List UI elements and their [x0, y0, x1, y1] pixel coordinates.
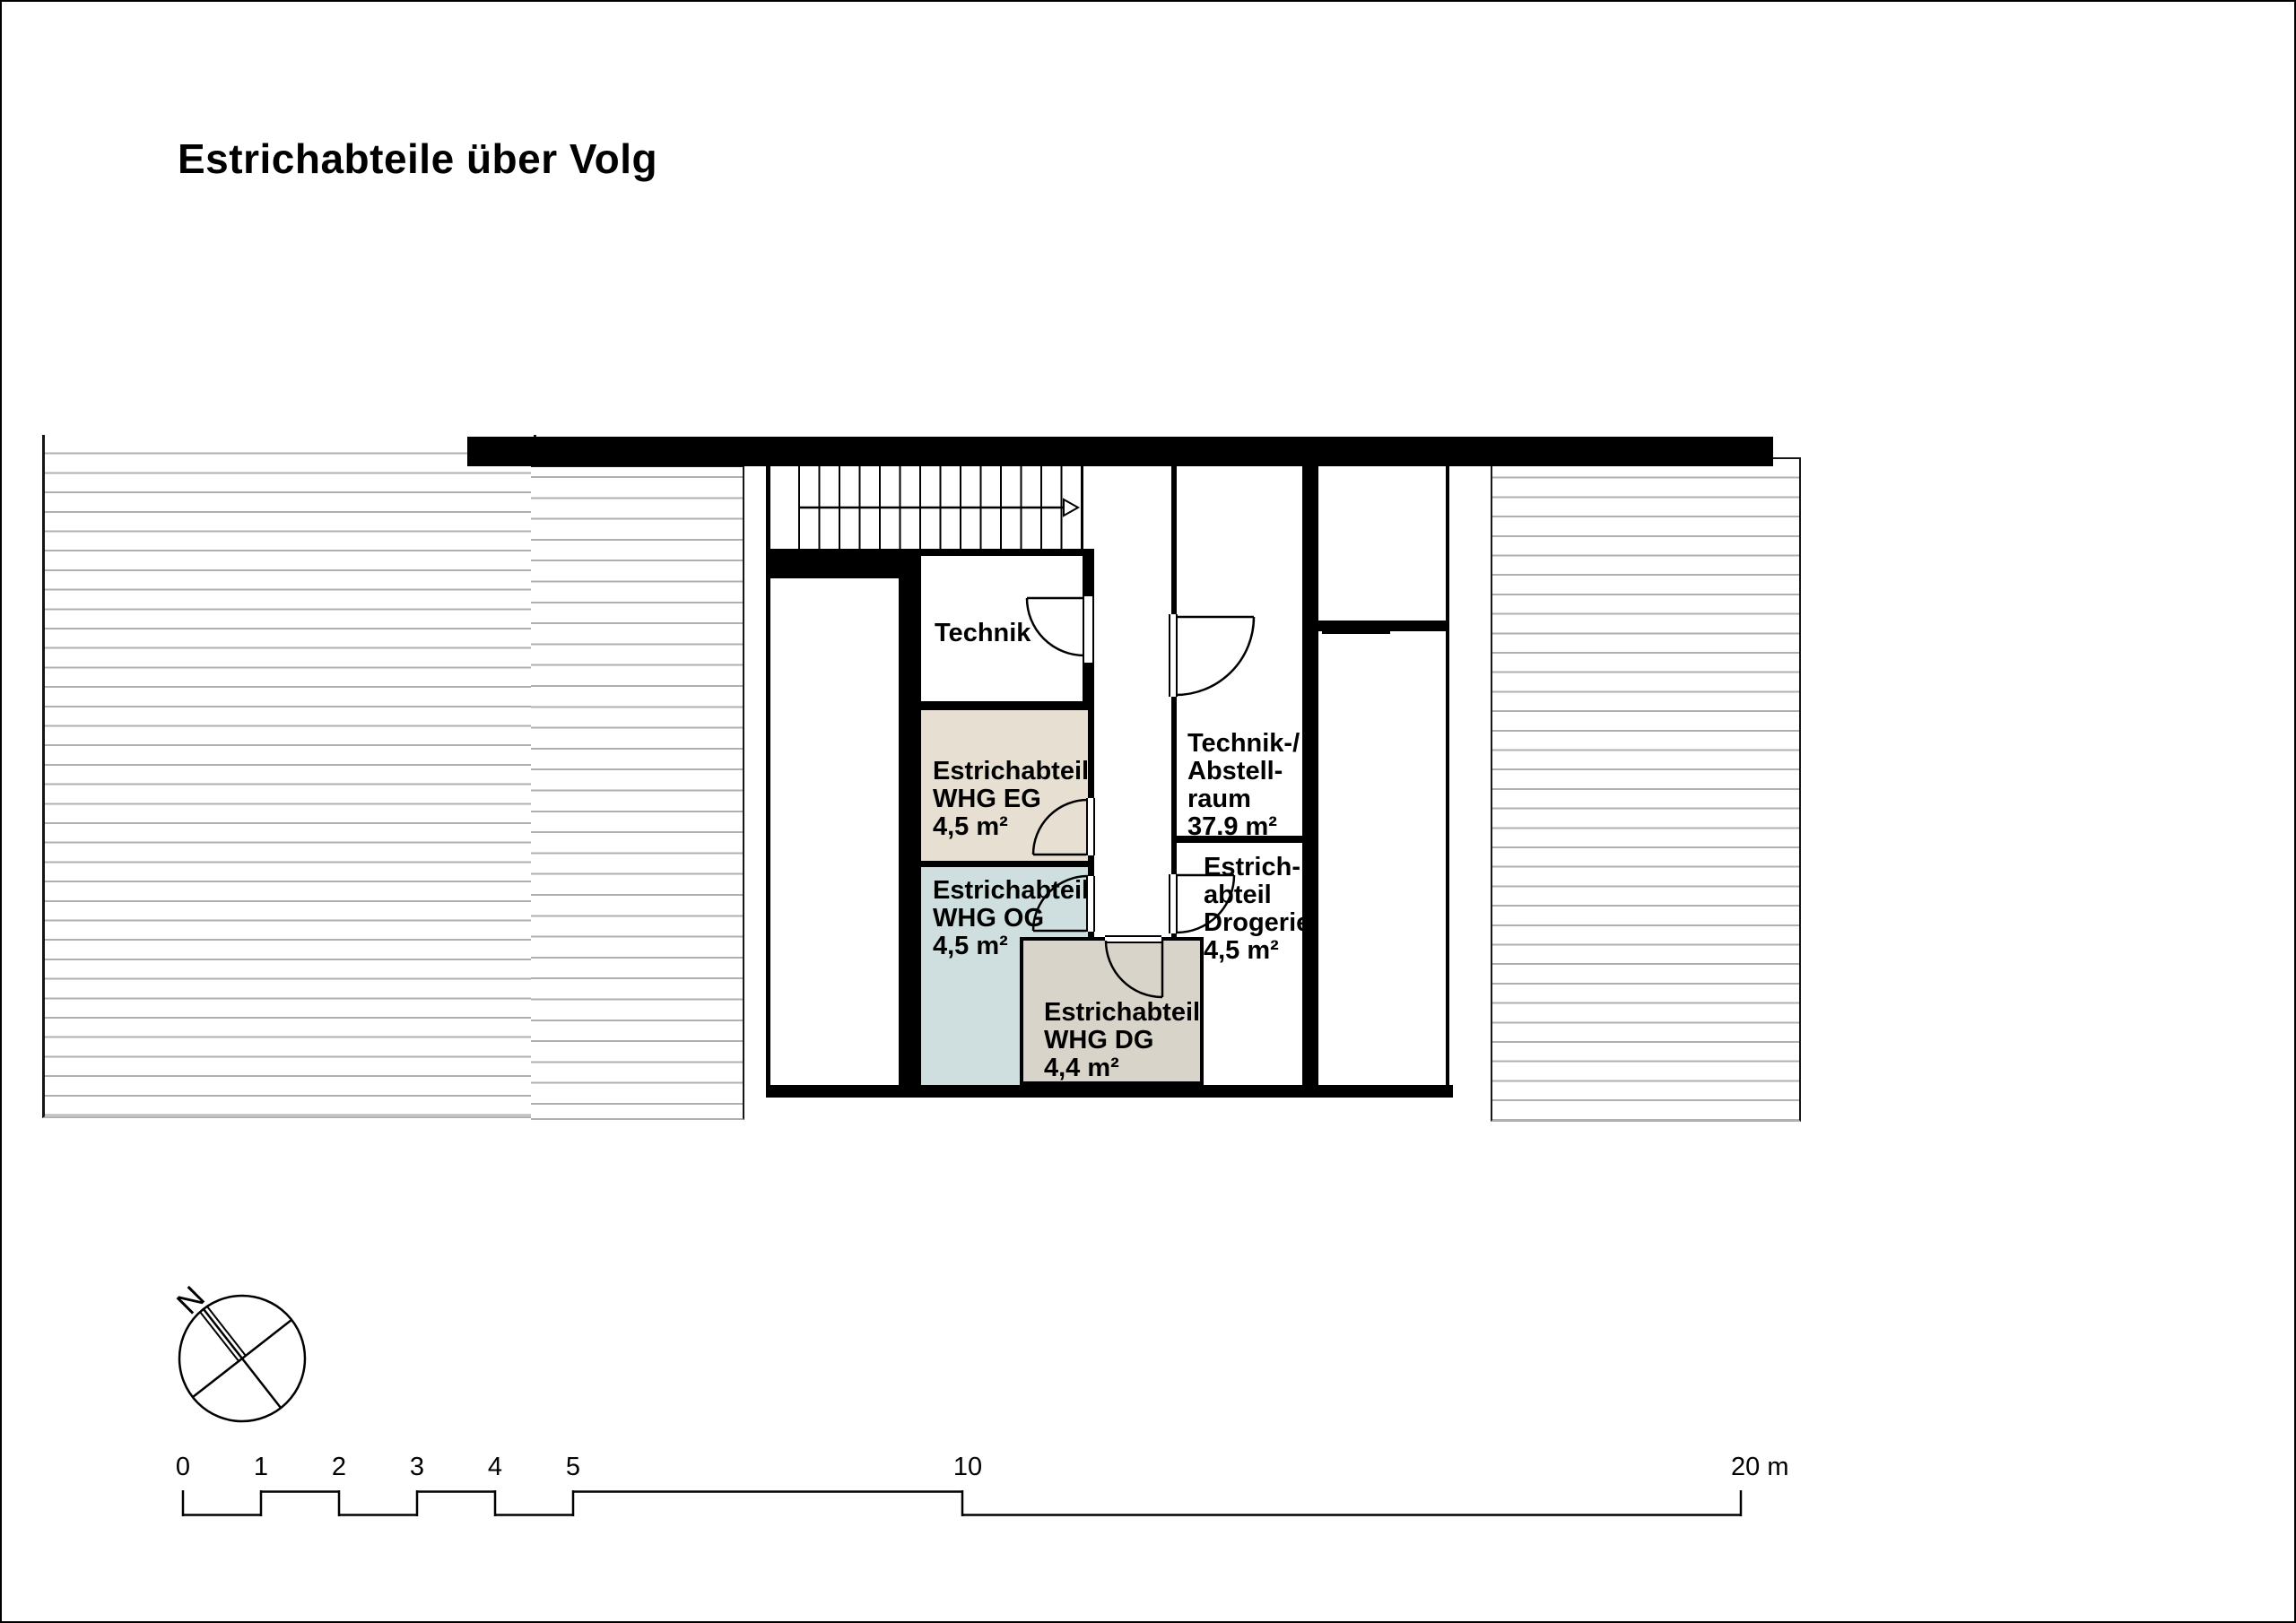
room-label-estrich-og: Estrichabteil WHG OG 4,5 m²: [933, 877, 1089, 960]
room-label-line: Estrichabteil: [933, 877, 1089, 905]
scale-label-4: 4: [464, 1453, 526, 1482]
room-label-line: 4,4 m²: [1044, 1055, 1200, 1082]
room-label-line: 4,5 m²: [1204, 937, 1310, 965]
room-label-line: 37.9 m²: [1187, 813, 1300, 841]
scale-label-3: 3: [386, 1453, 448, 1482]
room-label-line: WHG DG: [1044, 1027, 1200, 1055]
scale-label-0: 0: [152, 1453, 214, 1482]
technik-door-arc: [1027, 598, 1084, 655]
compass-needle-hatch-2: [207, 1306, 246, 1356]
scale-label-1: 1: [230, 1453, 292, 1482]
room-label-line: raum: [1187, 785, 1300, 813]
abstellraum-door-arc: [1176, 617, 1254, 695]
scale-label-10: 10: [936, 1453, 999, 1482]
room-label-line: 4,5 m²: [933, 813, 1089, 841]
scale-label-5: 5: [542, 1453, 604, 1482]
compass-needle-hatch-1: [200, 1312, 239, 1362]
room-label-line: Estrichabteil: [933, 758, 1089, 785]
room-label-line: WHG EG: [933, 785, 1089, 813]
scale-bar-ticks: [183, 1490, 1741, 1516]
room-label-line: Drogerie: [1204, 909, 1310, 937]
room-label-line: Technik-/: [1187, 730, 1300, 758]
room-label-line: Abstell-: [1187, 758, 1300, 785]
room-label-line: WHG OG: [933, 905, 1089, 933]
room-label-line: abteil: [1204, 881, 1310, 909]
room-label-estrich-drogerie: Estrich- abteil Drogerie 4,5 m²: [1204, 854, 1310, 965]
room-label-estrich-dg: Estrichabteil WHG DG 4,4 m²: [1044, 999, 1200, 1082]
plan-linework: N: [2, 2, 2296, 1623]
stair-arrow-head: [1064, 499, 1078, 516]
room-label-line: 4,5 m²: [933, 933, 1089, 960]
dg-door-arc: [1106, 941, 1162, 997]
compass-north-label: N: [170, 1279, 212, 1321]
scale-label-2: 2: [308, 1453, 370, 1482]
room-label-estrich-eg: Estrichabteil WHG EG 4,5 m²: [933, 758, 1089, 841]
compass-needle: [204, 1309, 281, 1408]
room-label-technik: Technik: [935, 619, 1031, 648]
scale-label-20m: 20 m: [1731, 1453, 1788, 1482]
floor-plan-page: Estrichabteile über Volg: [0, 0, 2296, 1623]
room-label-technik-abstellraum: Technik-/ Abstell- raum 37.9 m²: [1187, 730, 1300, 841]
room-label-line: Estrich-: [1204, 854, 1310, 881]
room-label-line: Estrichabteil: [1044, 999, 1200, 1027]
